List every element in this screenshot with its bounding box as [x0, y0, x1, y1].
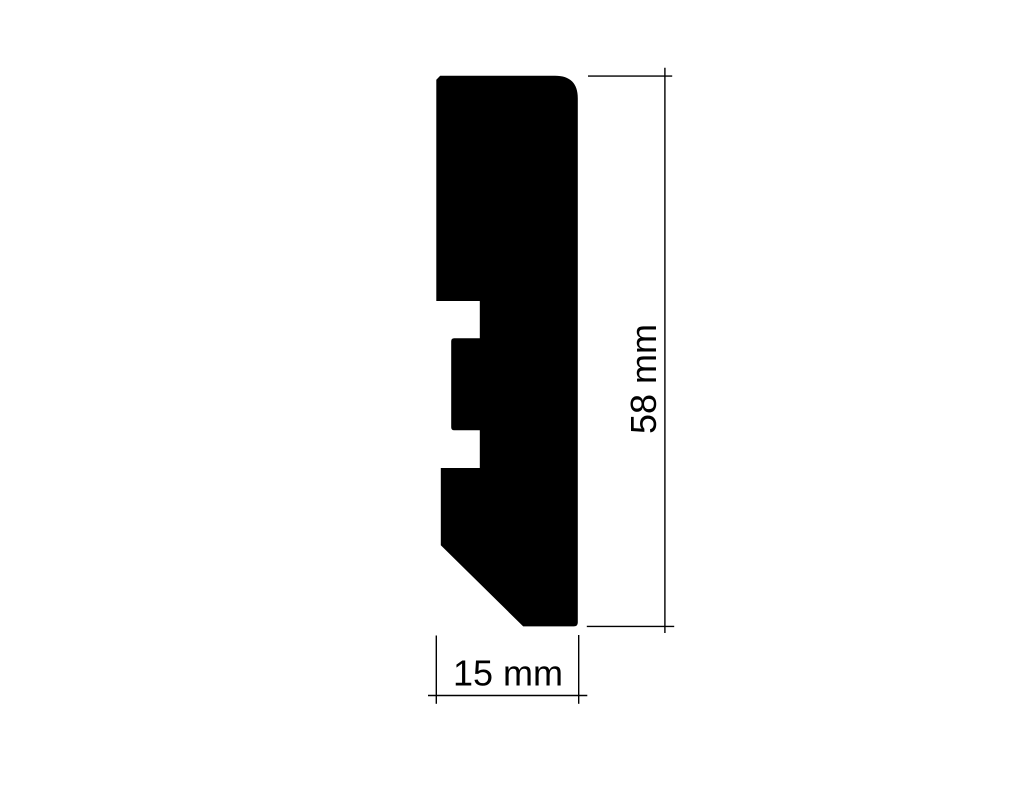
svg-text:15 mm: 15 mm: [453, 653, 563, 694]
svg-text:58 mm: 58 mm: [623, 324, 664, 434]
